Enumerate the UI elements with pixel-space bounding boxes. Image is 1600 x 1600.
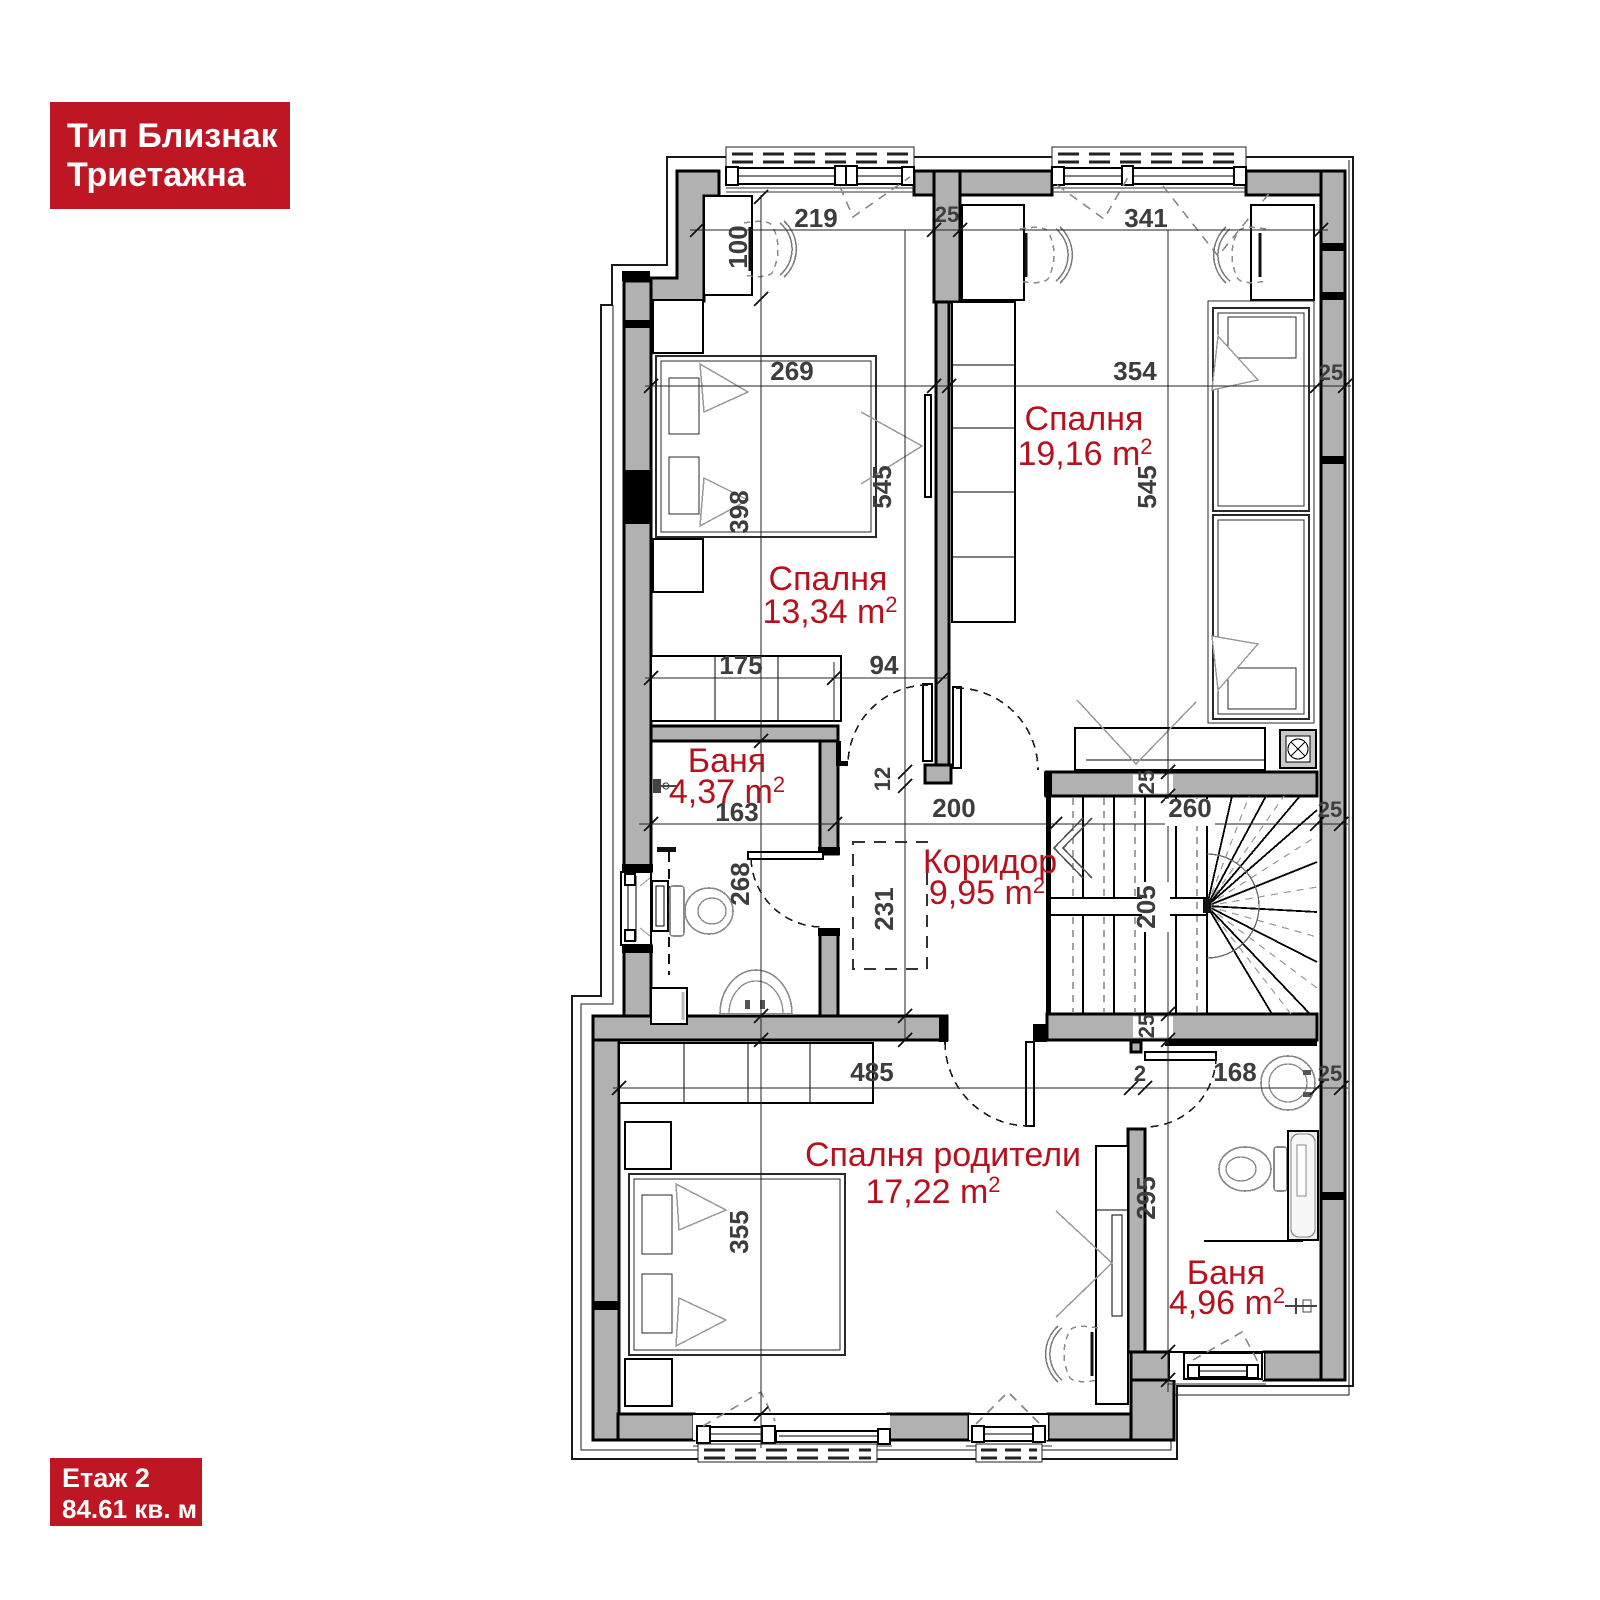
svg-text:295: 295 xyxy=(1131,1176,1161,1219)
svg-text:100: 100 xyxy=(723,225,753,268)
svg-text:Триетажна: Триетажна xyxy=(67,156,247,194)
svg-text:341: 341 xyxy=(1124,203,1167,233)
svg-text:354: 354 xyxy=(1113,356,1157,386)
svg-text:4,37 m2: 4,37 m2 xyxy=(669,772,785,811)
svg-text:398: 398 xyxy=(724,490,754,533)
svg-text:13,34 m2: 13,34 m2 xyxy=(762,592,897,631)
svg-text:19,16 m2: 19,16 m2 xyxy=(1017,434,1152,473)
svg-text:545: 545 xyxy=(867,465,897,508)
svg-text:2: 2 xyxy=(1134,1061,1146,1086)
svg-text:355: 355 xyxy=(724,1210,754,1253)
svg-text:9,95 m2: 9,95 m2 xyxy=(929,873,1045,912)
svg-text:25: 25 xyxy=(1318,1061,1342,1086)
svg-text:94: 94 xyxy=(870,650,899,680)
svg-text:17,22 m2: 17,22 m2 xyxy=(865,1172,1000,1211)
svg-text:260: 260 xyxy=(1168,793,1211,823)
svg-text:25: 25 xyxy=(1134,770,1159,794)
svg-text:269: 269 xyxy=(770,356,813,386)
svg-text:231: 231 xyxy=(869,887,899,930)
svg-text:25: 25 xyxy=(1134,1014,1159,1038)
svg-text:205: 205 xyxy=(1131,885,1161,928)
svg-text:219: 219 xyxy=(794,203,837,233)
svg-text:25: 25 xyxy=(935,202,959,227)
svg-text:168: 168 xyxy=(1213,1057,1256,1087)
svg-text:485: 485 xyxy=(850,1057,893,1087)
svg-text:Тип Близнак: Тип Близнак xyxy=(67,117,279,155)
svg-text:25: 25 xyxy=(1318,797,1342,822)
svg-text:Спалня: Спалня xyxy=(1025,400,1144,438)
svg-text:200: 200 xyxy=(932,793,975,823)
svg-text:Спалня родители: Спалня родители xyxy=(805,1136,1081,1174)
svg-text:84.61 кв. м: 84.61 кв. м xyxy=(62,1494,197,1524)
svg-text:4,96 m2: 4,96 m2 xyxy=(1169,1283,1285,1322)
svg-text:12: 12 xyxy=(870,767,895,791)
svg-text:175: 175 xyxy=(719,650,762,680)
svg-text:25: 25 xyxy=(1319,360,1343,385)
svg-text:Етаж 2: Етаж 2 xyxy=(62,1463,150,1493)
svg-text:268: 268 xyxy=(725,862,755,905)
